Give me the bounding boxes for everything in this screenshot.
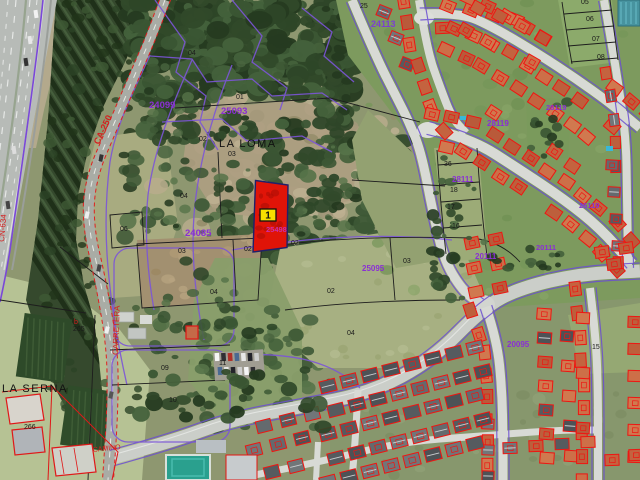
svg-text:1: 1: [265, 211, 271, 222]
svg-text:28111: 28111: [452, 175, 474, 184]
svg-text:04: 04: [188, 50, 196, 57]
svg-text:25: 25: [360, 3, 368, 10]
svg-text:02: 02: [327, 288, 335, 295]
svg-text:06: 06: [586, 16, 594, 23]
svg-text:05: 05: [581, 0, 589, 6]
svg-text:04: 04: [210, 289, 218, 296]
svg-text:b: b: [74, 319, 78, 326]
svg-text:36: 36: [444, 161, 452, 168]
svg-text:25093: 25093: [221, 106, 247, 117]
svg-text:20095: 20095: [507, 340, 530, 349]
svg-text:25498: 25498: [266, 225, 287, 234]
svg-text:03: 03: [178, 248, 186, 255]
svg-text:CARRETERA: CARRETERA: [111, 305, 122, 355]
svg-text:08: 08: [597, 54, 605, 61]
svg-text:266: 266: [24, 424, 36, 431]
svg-text:25095: 25095: [362, 264, 385, 273]
svg-text:15: 15: [592, 344, 600, 351]
svg-text:24099: 24099: [149, 100, 175, 111]
svg-text:02: 02: [244, 246, 252, 253]
svg-text:02: 02: [291, 240, 299, 247]
svg-text:24113: 24113: [371, 19, 396, 29]
svg-text:02: 02: [199, 136, 207, 143]
svg-text:16: 16: [452, 223, 460, 230]
svg-text:24085: 24085: [185, 228, 212, 239]
svg-text:265: 265: [73, 326, 85, 333]
svg-text:28119: 28119: [546, 103, 566, 112]
svg-text:20111: 20111: [536, 243, 556, 252]
svg-text:01: 01: [236, 94, 244, 101]
svg-text:LA SERNA: LA SERNA: [2, 383, 68, 395]
svg-text:28119: 28119: [487, 119, 509, 128]
svg-text:10: 10: [169, 397, 177, 404]
svg-text:04: 04: [180, 193, 188, 200]
svg-text:09: 09: [161, 365, 169, 372]
svg-text:17: 17: [447, 204, 455, 211]
svg-text:04: 04: [347, 330, 355, 337]
svg-text:LA LOMA: LA LOMA: [219, 138, 277, 150]
svg-text:07: 07: [592, 36, 600, 43]
svg-text:18: 18: [450, 187, 458, 194]
svg-text:26119: 26119: [579, 201, 599, 210]
svg-text:06: 06: [120, 226, 128, 233]
svg-text:20111: 20111: [475, 252, 497, 261]
svg-text:03: 03: [403, 258, 411, 265]
svg-text:11: 11: [219, 360, 226, 367]
svg-text:03: 03: [228, 151, 236, 158]
